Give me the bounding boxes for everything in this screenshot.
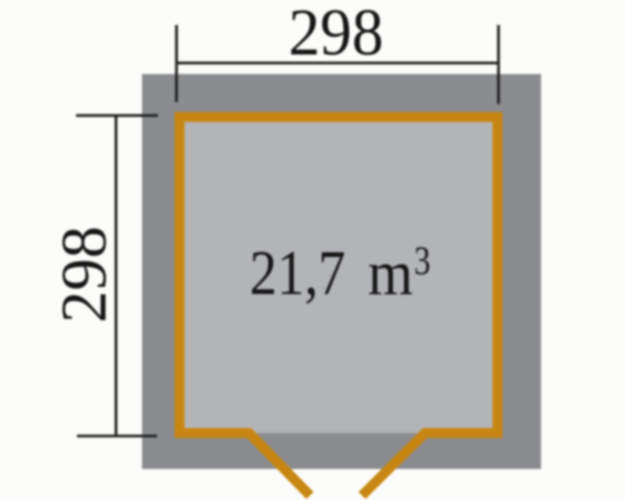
svg-text:298: 298 xyxy=(289,0,384,70)
svg-text:21,7: 21,7 xyxy=(250,237,346,308)
svg-text:298: 298 xyxy=(49,226,121,323)
svg-text:m: m xyxy=(368,237,413,308)
svg-text:3: 3 xyxy=(414,238,431,283)
